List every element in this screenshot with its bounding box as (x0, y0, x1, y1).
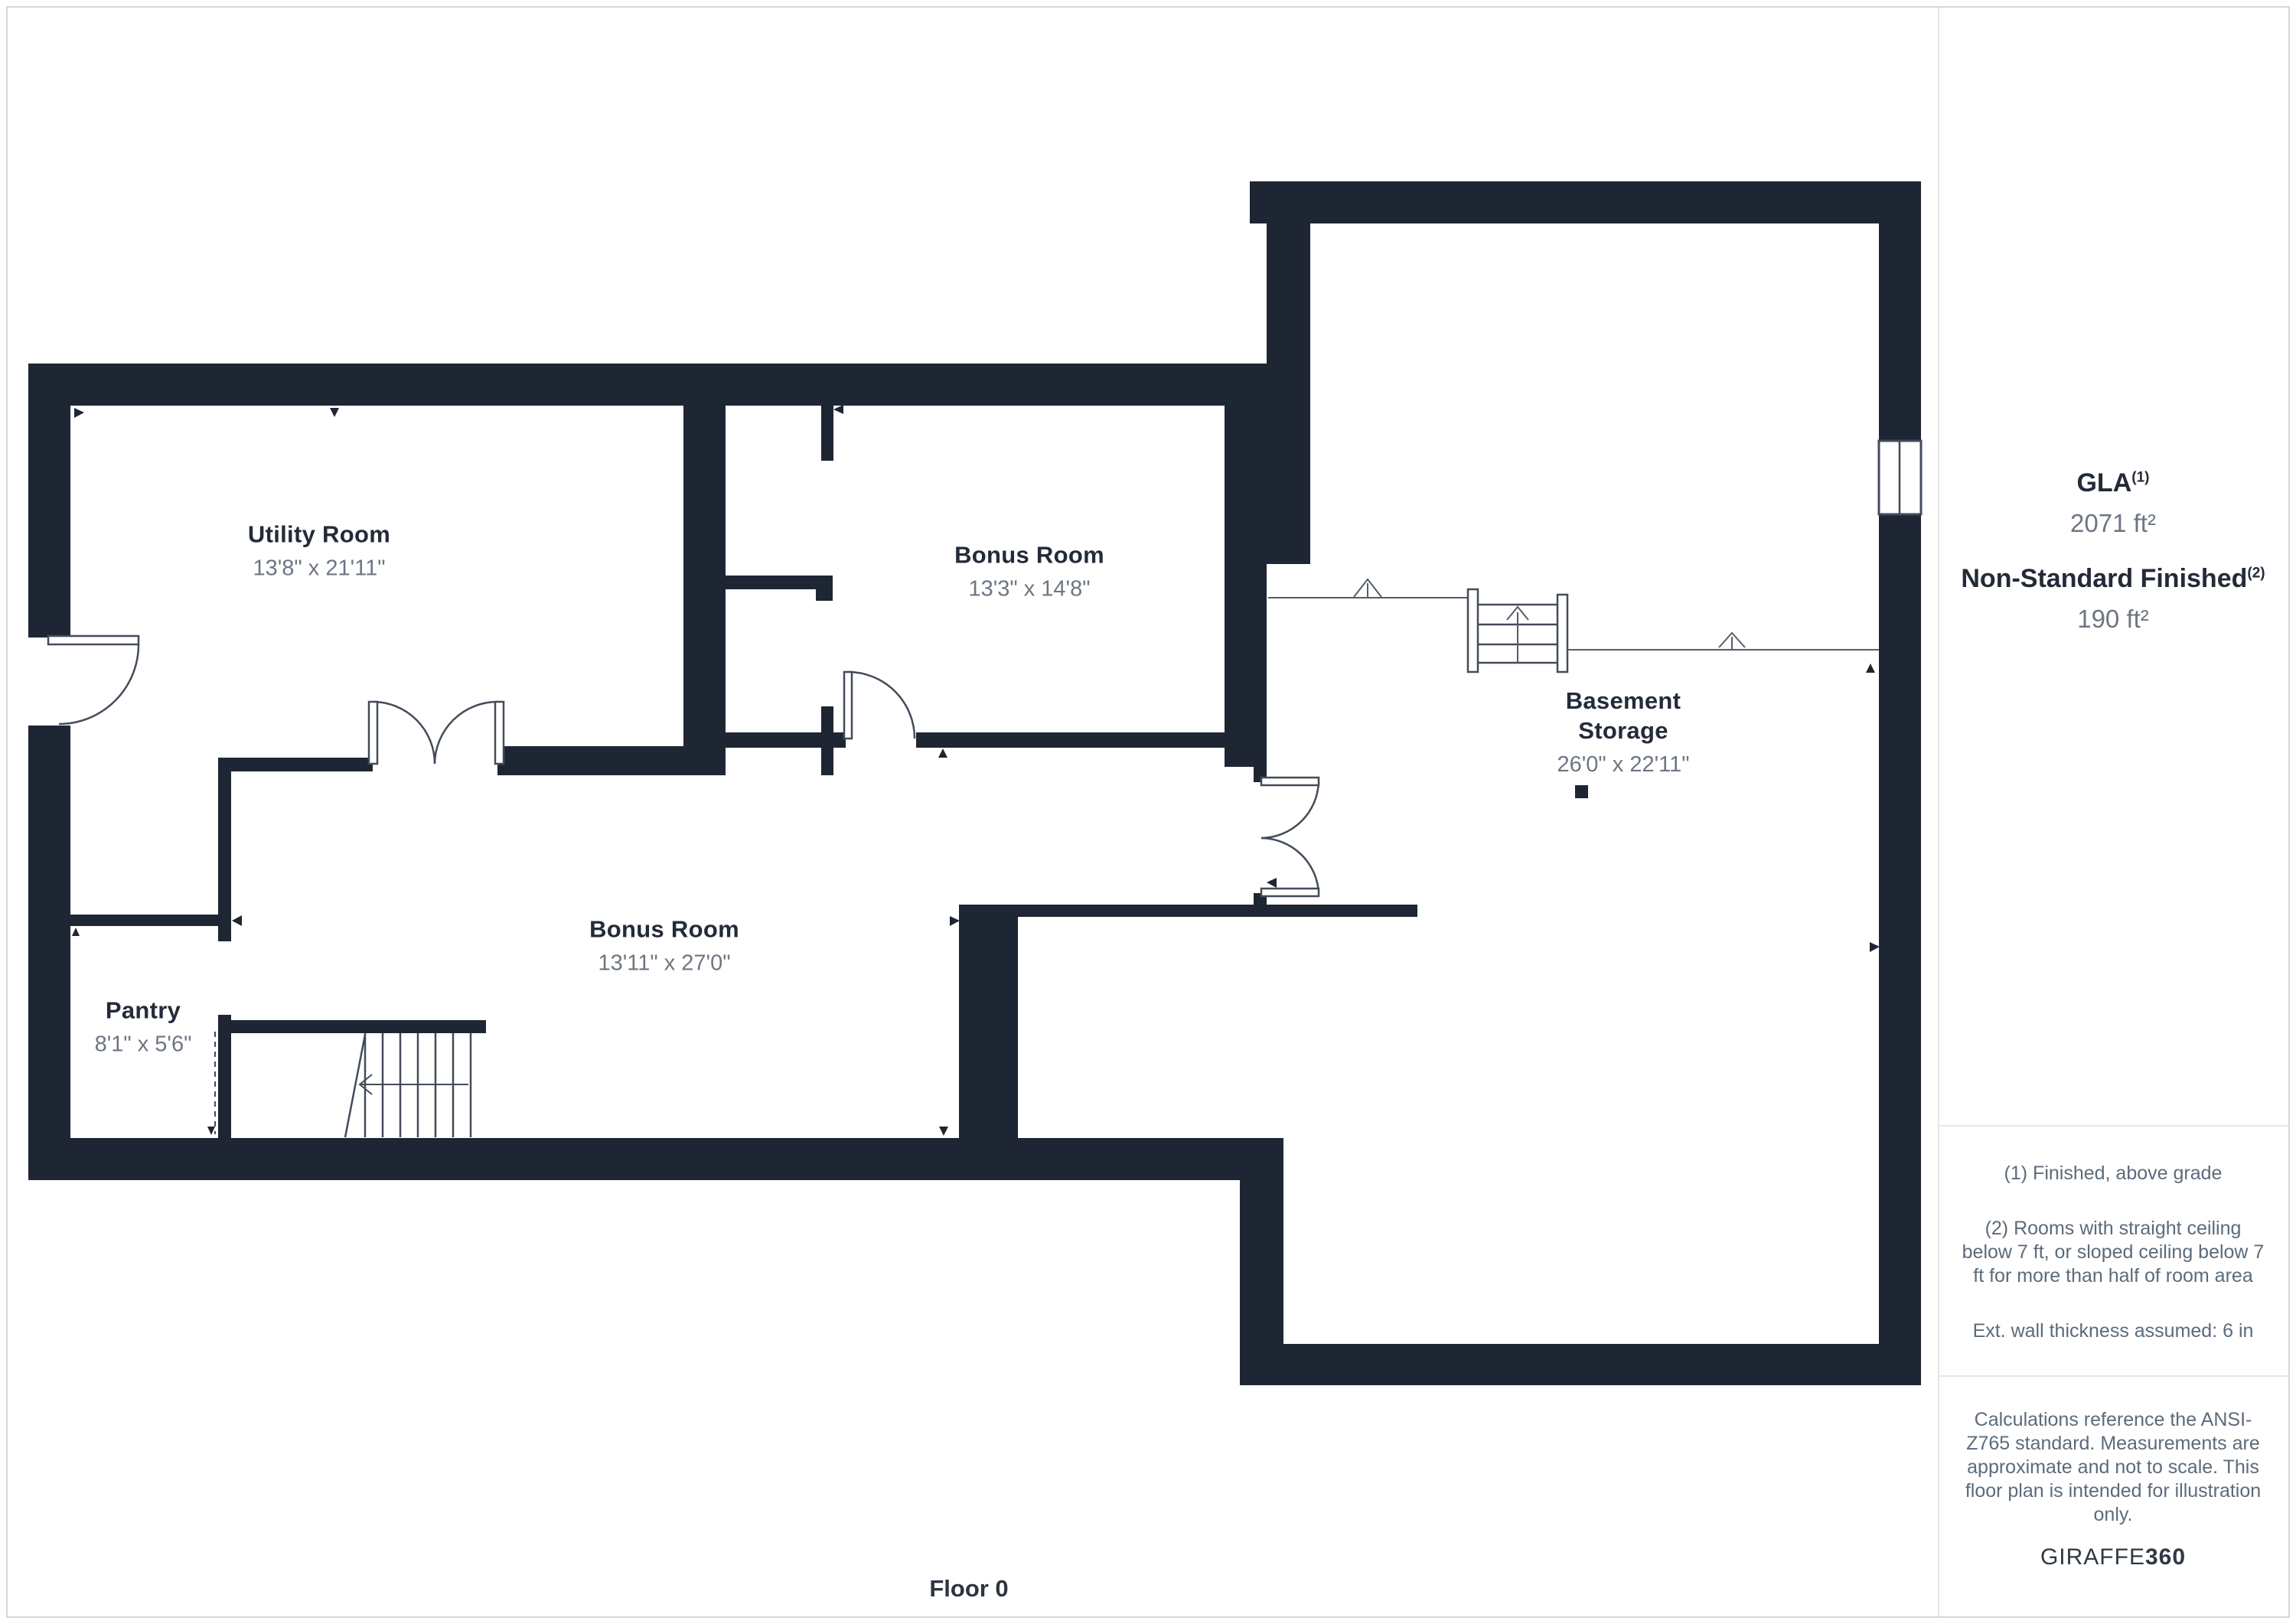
nsf-footnote-ref: (2) (2247, 566, 2265, 582)
room-name: Bonus Room (954, 541, 1104, 571)
gla-label: GLA (2076, 468, 2131, 497)
walls (28, 181, 1921, 1385)
room-dimensions: 26'0" x 22'11" (1528, 751, 1719, 778)
column-post (1575, 785, 1588, 798)
brand-name: GIRAFFE (2040, 1544, 2145, 1570)
room-dimensions: 13'3" x 14'8" (954, 575, 1104, 602)
wall-thickness-note: Ext. wall thickness assumed: 6 in (1960, 1319, 2266, 1343)
room-name: Utility Room (248, 520, 390, 550)
notes-divider (1939, 1125, 2288, 1127)
room-name: Basement Storage (1528, 686, 1719, 746)
giraffe360-logo: GIRAFFE360 (1938, 1544, 2288, 1570)
nsf-label: Non-Standard Finished (1961, 564, 2247, 593)
room-dimensions: 13'11" x 27'0" (589, 949, 739, 977)
floor-plan-page: Utility Room 13'8" x 21'11" Bonus Room 1… (0, 0, 2296, 1624)
info-sidebar: GLA(1) 2071 ft² Non-Standard Finished(2)… (1938, 0, 2288, 1624)
nsf-heading: Non-Standard Finished(2) (1938, 564, 2288, 594)
gla-value: 2071 ft² (1938, 509, 2288, 538)
window-symbol (1879, 441, 1921, 514)
gla-footnote-ref: (1) (2131, 470, 2149, 486)
room-name: Pantry (95, 996, 192, 1026)
disclaimer-text: Calculations reference the ANSI-Z765 sta… (1960, 1408, 2266, 1527)
footnote-1: (1) Finished, above grade (1960, 1162, 2266, 1185)
disclaimer-divider (1939, 1375, 2288, 1377)
room-label-bonus-top: Bonus Room 13'3" x 14'8" (954, 541, 1104, 603)
footnote-2: (2) Rooms with straight ceiling below 7 … (1960, 1217, 2266, 1288)
floor-label: Floor 0 (0, 1575, 1938, 1603)
staircase-icon (215, 1032, 471, 1137)
nsf-value: 190 ft² (1938, 605, 2288, 634)
room-dimensions: 8'1" x 5'6" (95, 1030, 192, 1058)
brand-suffix: 360 (2145, 1544, 2186, 1570)
room-label-pantry: Pantry 8'1" x 5'6" (95, 996, 192, 1058)
room-name: Bonus Room (589, 915, 739, 945)
room-label-utility: Utility Room 13'8" x 21'11" (248, 520, 390, 582)
gla-heading: GLA(1) (1938, 468, 2288, 498)
room-dimensions: 13'8" x 21'11" (248, 554, 390, 582)
room-label-bonus-bottom: Bonus Room 13'11" x 27'0" (589, 915, 739, 977)
basement-stairs-icon (1268, 579, 1879, 672)
room-label-basement-storage: Basement Storage 26'0" x 22'11" (1528, 686, 1719, 778)
